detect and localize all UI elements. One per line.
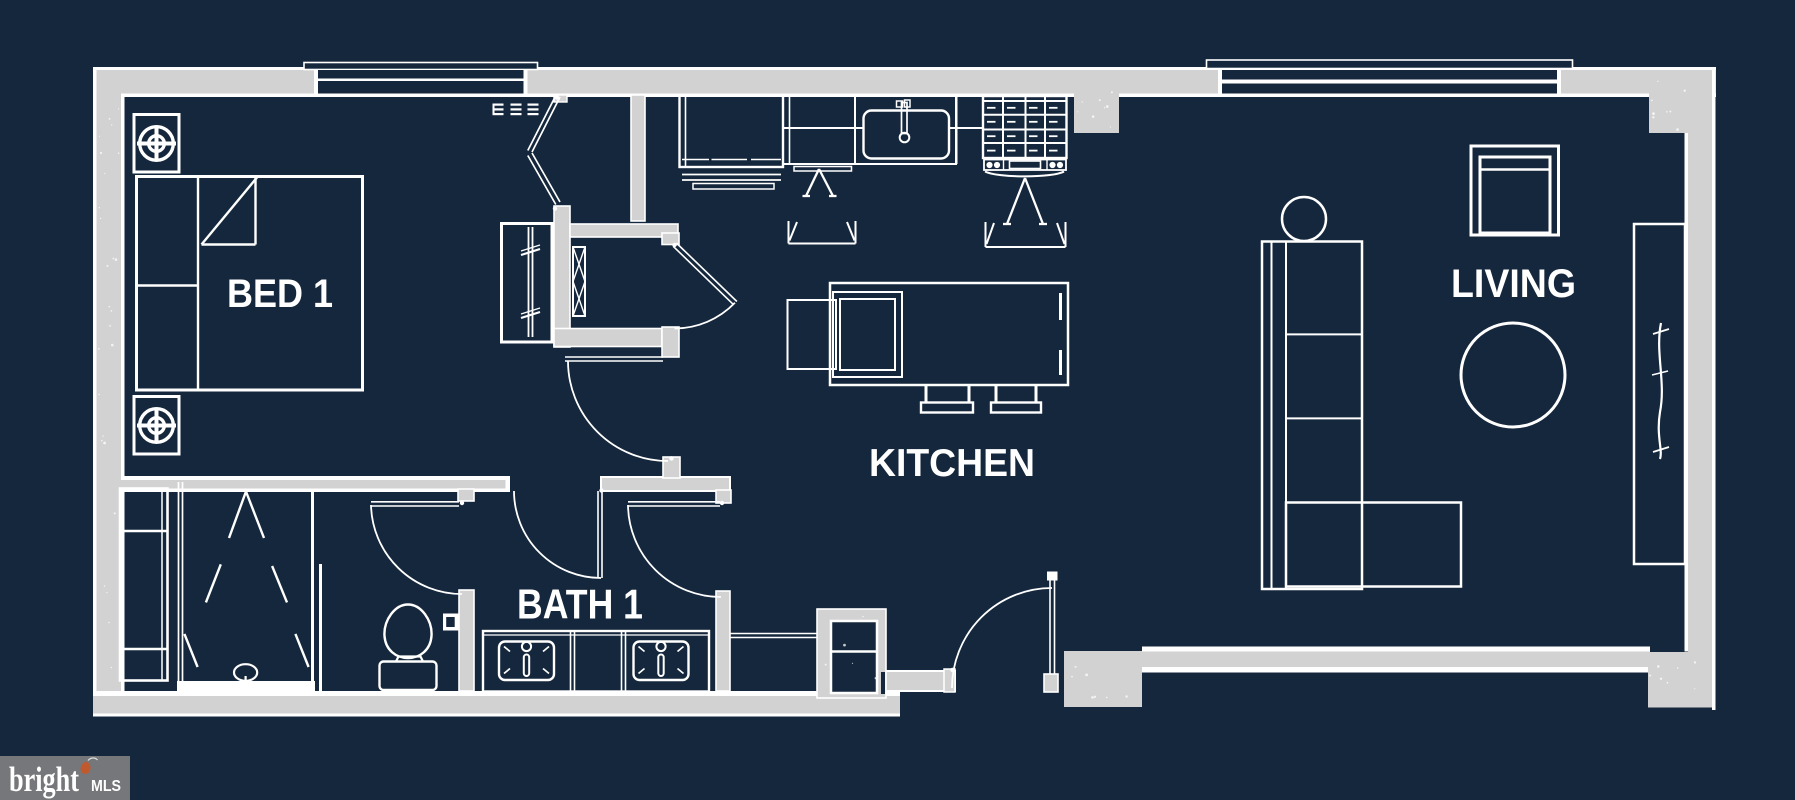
svg-text:BATH 1: BATH 1 bbox=[517, 581, 643, 628]
svg-text:LIVING: LIVING bbox=[1451, 262, 1576, 306]
svg-text:KITCHEN: KITCHEN bbox=[869, 442, 1035, 485]
svg-text:MLS: MLS bbox=[91, 778, 121, 795]
svg-text:BED 1: BED 1 bbox=[227, 272, 333, 316]
svg-text:bright: bright bbox=[9, 760, 79, 799]
